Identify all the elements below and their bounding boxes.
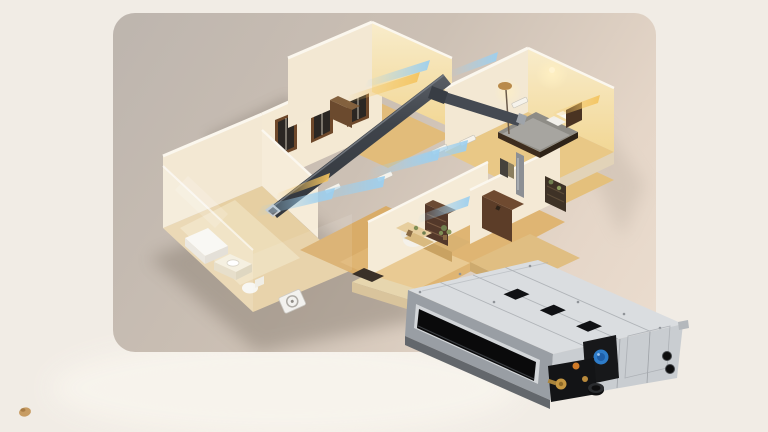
wood-crumb [18, 406, 32, 418]
scene-canvas [0, 0, 768, 432]
ceiling-light-glow [536, 58, 568, 90]
mirror [516, 152, 524, 198]
mounting-bracket [678, 320, 689, 330]
unit-drain-pipe [588, 383, 604, 396]
product-marketing-image [0, 0, 768, 432]
copper-fitting [573, 363, 580, 370]
